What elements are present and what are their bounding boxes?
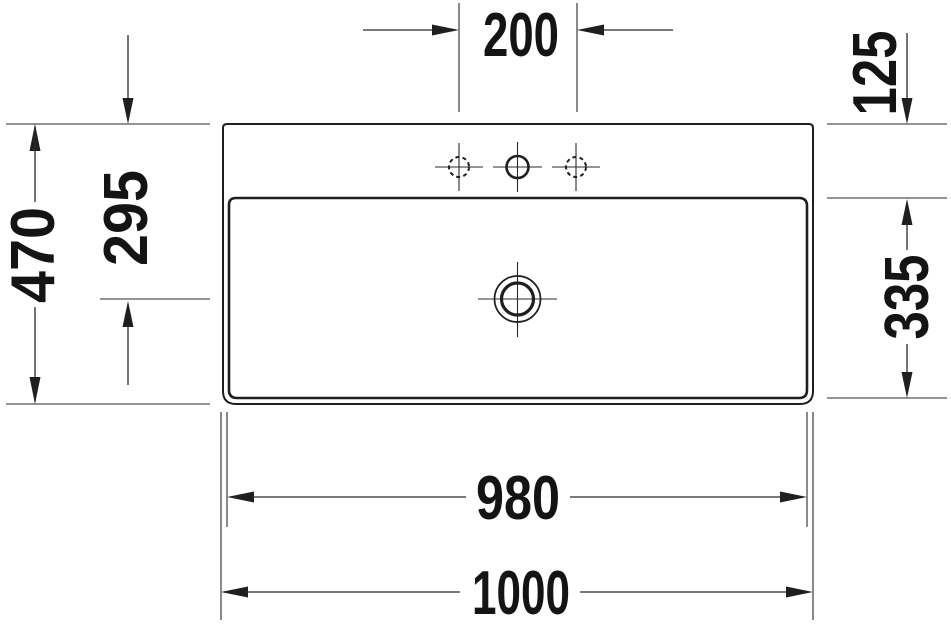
dim-bowl-width: 980 <box>227 412 807 533</box>
dim-label-335: 335 <box>873 255 942 340</box>
arrowhead-right <box>780 492 807 503</box>
drain <box>478 262 557 337</box>
dim-label-470: 470 <box>0 207 68 303</box>
arrowhead-left <box>227 492 254 503</box>
arrowhead-down <box>902 372 913 398</box>
arrowhead-right <box>786 587 813 598</box>
dim-bowl-depth: 335 <box>827 199 947 398</box>
dim-label-295: 295 <box>92 170 161 266</box>
dim-back-ledge-depth: 125 <box>827 31 947 199</box>
arrowhead-down <box>123 98 134 124</box>
arrowhead-left <box>221 587 248 598</box>
dim-label-125: 125 <box>841 31 910 116</box>
technical-drawing-canvas: 200 470 295 125 <box>0 0 951 626</box>
arrowhead-up <box>123 301 134 327</box>
washbasin-dimension-drawing: 200 470 295 125 <box>0 0 951 626</box>
arrowhead-up <box>902 199 913 225</box>
arrowhead-left <box>577 25 604 36</box>
dim-label-1000: 1000 <box>472 559 570 626</box>
dim-label-200: 200 <box>483 1 559 70</box>
arrowhead-right <box>432 25 459 36</box>
dim-drain-offset: 295 <box>92 35 210 385</box>
faucet-holes <box>435 142 600 192</box>
dim-faucet-hole-spacing: 200 <box>363 1 673 112</box>
arrowhead-down <box>30 377 41 404</box>
dim-label-980: 980 <box>476 464 560 533</box>
